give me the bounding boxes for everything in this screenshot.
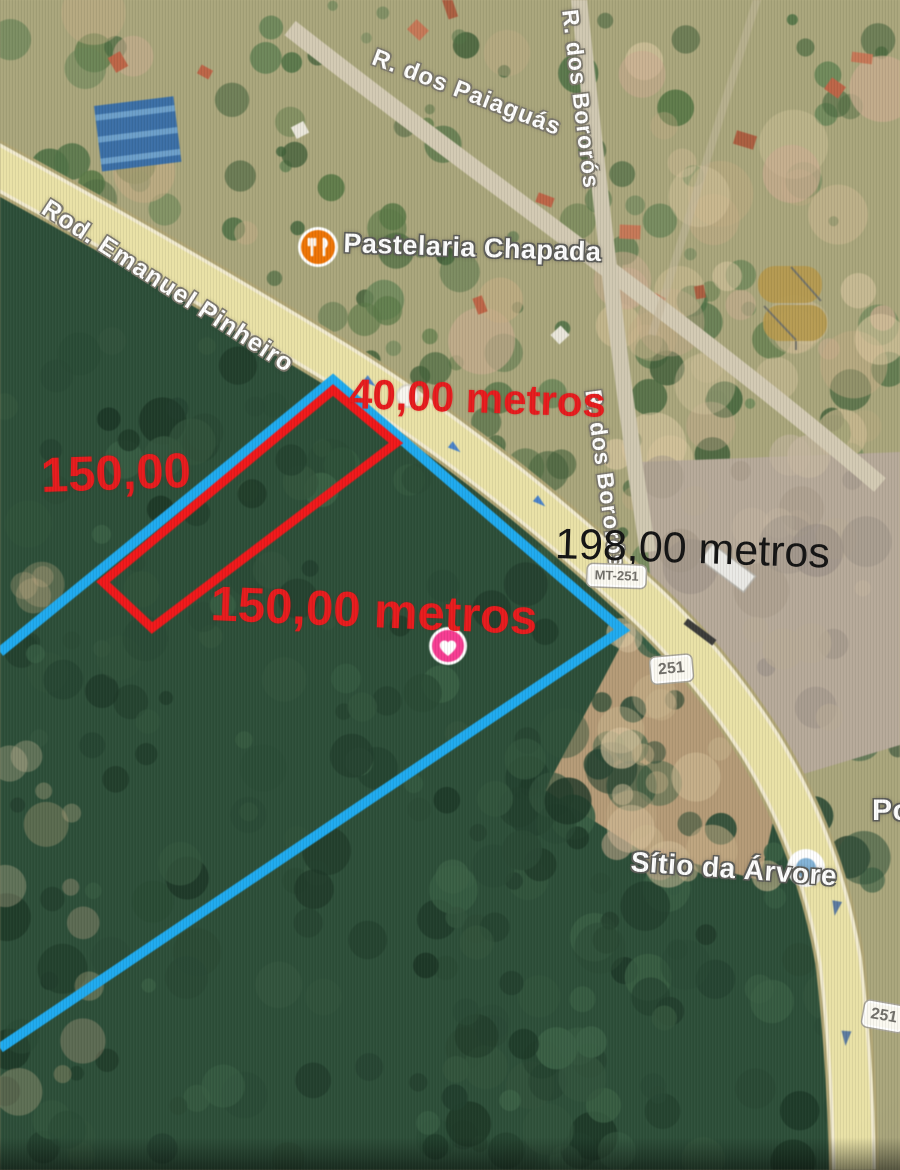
road-shield-mt251: MT-251 bbox=[587, 564, 646, 588]
road-shield-251-mid: 251 bbox=[650, 654, 693, 683]
satellite-map-canvas bbox=[0, 0, 900, 1170]
measurement-front-40m: 40,00 metros bbox=[348, 370, 606, 427]
satellite-map-screenshot: Rod. Emanuel Pinheiro R. dos Paiaguás R.… bbox=[0, 0, 900, 1170]
measurement-left-150m: 150,00 bbox=[40, 443, 192, 504]
poi-label-partial-right-edge: Po bbox=[872, 794, 900, 828]
restaurant-marker[interactable] bbox=[298, 227, 338, 267]
blue-roof-building bbox=[94, 96, 181, 171]
